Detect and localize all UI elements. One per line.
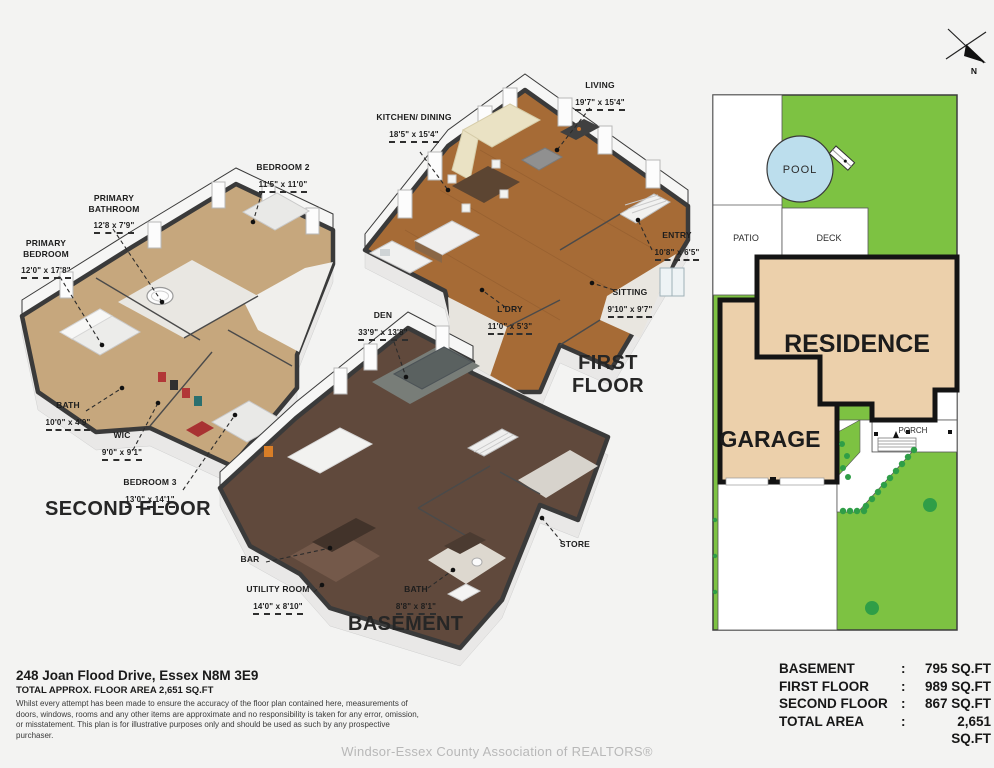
room-label-den: DEN 33'9" x 13'8" — [340, 310, 426, 341]
room-dims: 33'9" x 13'8" — [358, 328, 408, 341]
floorplan-sheet: POOL PATIO DECK RESIDENCE GARAGE PORCH N… — [0, 0, 994, 768]
deck-label: DECK — [816, 233, 841, 243]
room-label-bar: BAR — [231, 554, 269, 565]
area-row-colon: : — [901, 713, 915, 748]
area-row-label: FIRST FLOOR — [779, 678, 901, 696]
room-label-utility-room: UTILITY ROOM 14'0" x 8'10" — [236, 584, 320, 615]
area-row-value: 867 SQ.FT — [915, 695, 991, 713]
site-driveway — [718, 482, 837, 630]
area-row-value: 2,651 SQ.FT — [915, 713, 991, 748]
room-label-primary-bathroom: PRIMARY BATHROOM 12'8 x 7'9" — [76, 193, 152, 234]
total-floor-area-line: TOTAL APPROX. FLOOR AREA 2,651 SQ.FT — [16, 685, 466, 696]
room-name: PRIMARY BEDROOM — [6, 238, 86, 259]
area-summary-table: BASEMENT : 795 SQ.FT FIRST FLOOR : 989 S… — [779, 660, 991, 748]
site-porch-notch — [935, 390, 957, 420]
site-plan: POOL PATIO DECK RESIDENCE GARAGE PORCH — [713, 95, 957, 630]
room-label-kitchen-dining: KITCHEN/ DINING 18'5" x 15'4" — [375, 112, 453, 143]
first-floor-title: FIRST FLOOR — [540, 352, 676, 398]
room-name: DEN — [340, 310, 426, 321]
basement-title: BASEMENT — [348, 613, 460, 636]
area-row-label: TOTAL AREA — [779, 713, 901, 748]
garage-label: GARAGE — [720, 426, 821, 452]
room-dims: 10'0" x 4'9" — [46, 418, 91, 431]
room-name: UTILITY ROOM — [236, 584, 320, 595]
footer-block: 248 Joan Flood Drive, Essex N8M 3E9 TOTA… — [16, 668, 466, 741]
porch-label: PORCH — [899, 426, 928, 435]
patio-label: PATIO — [733, 233, 759, 243]
room-dims: 14'0" x 8'10" — [253, 602, 303, 615]
room-label-bath-second: BATH 10'0" x 4'9" — [36, 400, 100, 431]
room-dims: 18'5" x 15'4" — [389, 130, 439, 143]
area-row-value: 795 SQ.FT — [915, 660, 991, 678]
property-address: 248 Joan Flood Drive, Essex N8M 3E9 — [16, 668, 466, 683]
room-name: L'DRY — [481, 304, 539, 315]
room-dims: 12'0" x 17'8" — [21, 266, 71, 279]
room-dims: 11'0" x 5'3" — [488, 322, 533, 335]
area-row-label: BASEMENT — [779, 660, 901, 678]
area-row-value: 989 SQ.FT — [915, 678, 991, 696]
room-name: LIVING — [560, 80, 640, 91]
room-name: KITCHEN/ DINING — [375, 112, 453, 123]
compass: N — [946, 29, 986, 76]
room-name: BAR — [231, 554, 269, 565]
room-dims: 10'8" x 6'5" — [655, 248, 700, 261]
room-label-living: LIVING 19'7" x 15'4" — [560, 80, 640, 111]
room-name: WIC — [92, 430, 152, 441]
room-name: BEDROOM 2 — [243, 162, 323, 173]
room-dims: 11'5" x 11'0" — [259, 180, 308, 193]
room-label-wic: WIC 9'0" x 9'1" — [92, 430, 152, 461]
compass-north-label: N — [971, 66, 977, 76]
room-label-bedroom-2: BEDROOM 2 11'5" x 11'0" — [243, 162, 323, 193]
pool-label: POOL — [783, 164, 818, 176]
disclaimer-text: Whilst every attempt has been made to en… — [16, 699, 420, 741]
room-label-laundry: L'DRY 11'0" x 5'3" — [481, 304, 539, 335]
room-label-store: STORE — [550, 539, 600, 550]
room-label-sitting: SITTING 9'10" x 9'7" — [597, 287, 663, 318]
room-name: SITTING — [597, 287, 663, 298]
area-row-colon: : — [901, 695, 915, 713]
room-dims: 9'10" x 9'7" — [608, 305, 653, 318]
room-name: BATH — [36, 400, 100, 411]
second-floor-title: SECOND FLOOR — [38, 498, 218, 521]
compass-north-arrow-icon — [964, 44, 986, 63]
watermark-text: Windsor-Essex County Association of REAL… — [247, 744, 747, 759]
room-name: ENTRY — [646, 230, 708, 241]
room-dims: 9'0" x 9'1" — [102, 448, 142, 461]
floorplan-canvas: POOL PATIO DECK RESIDENCE GARAGE PORCH N — [0, 0, 994, 768]
area-row-colon: : — [901, 660, 915, 678]
room-label-primary-bedroom: PRIMARY BEDROOM 12'0" x 17'8" — [6, 238, 86, 279]
residence-label: RESIDENCE — [784, 330, 930, 358]
area-row-colon: : — [901, 678, 915, 696]
room-label-bath-basement: BATH 8'8" x 8'1" — [383, 584, 449, 615]
room-dims: 19'7" x 15'4" — [575, 98, 625, 111]
room-name: STORE — [550, 539, 600, 550]
room-dims: 12'8 x 7'9" — [94, 221, 135, 234]
area-row-label: SECOND FLOOR — [779, 695, 901, 713]
room-name: PRIMARY BATHROOM — [76, 193, 152, 214]
room-name: BEDROOM 3 — [105, 477, 195, 488]
room-name: BATH — [383, 584, 449, 595]
room-label-entry: ENTRY 10'8" x 6'5" — [646, 230, 708, 261]
